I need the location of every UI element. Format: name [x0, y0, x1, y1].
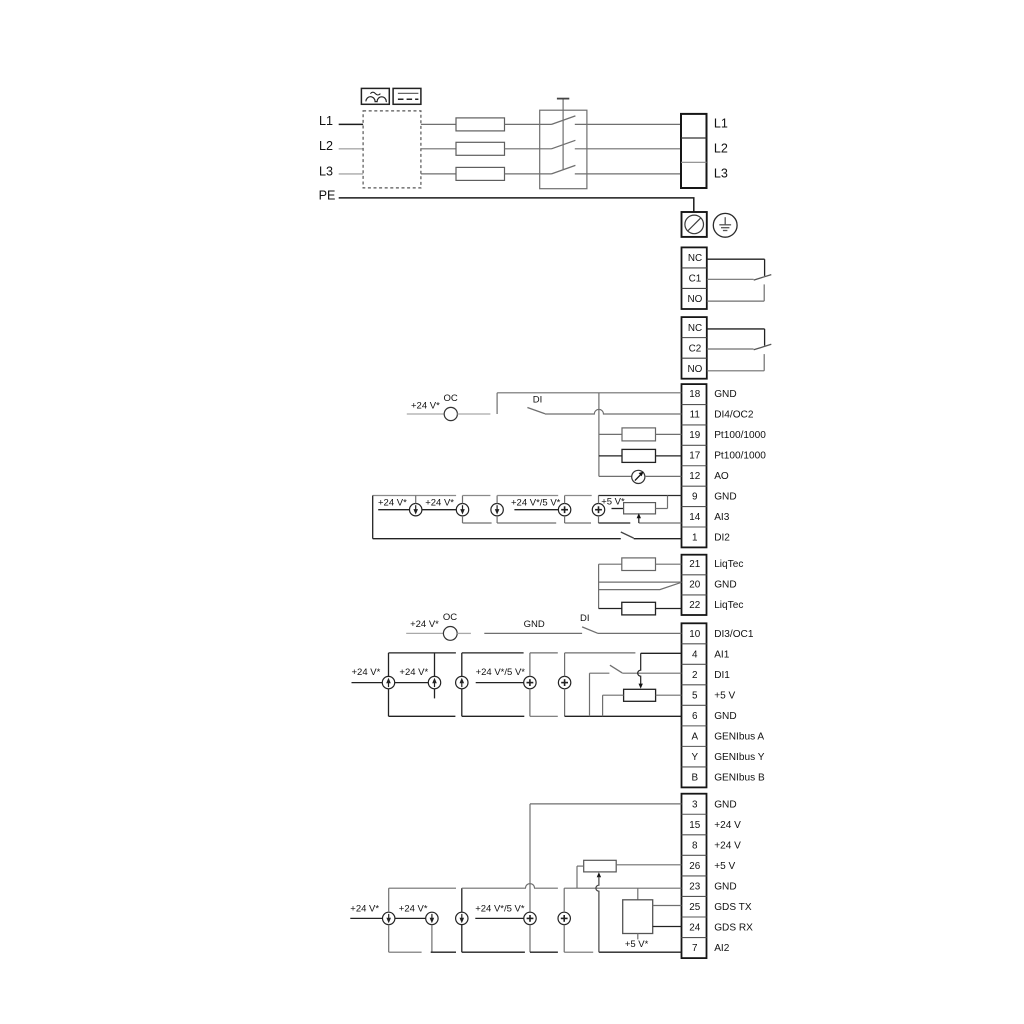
svg-text:AO: AO [714, 471, 729, 482]
svg-text:GND: GND [714, 389, 736, 400]
svg-text:26: 26 [689, 861, 700, 872]
svg-text:20: 20 [689, 580, 700, 591]
svg-text:GND: GND [524, 619, 545, 630]
svg-text:Pt100/1000: Pt100/1000 [714, 430, 766, 441]
svg-text:GND: GND [714, 491, 736, 502]
svg-text:12: 12 [689, 471, 700, 482]
svg-text:10: 10 [689, 629, 700, 640]
svg-text:C1: C1 [689, 274, 702, 285]
svg-text:DI3/OC1: DI3/OC1 [714, 629, 754, 640]
svg-text:L1: L1 [714, 117, 728, 131]
svg-text:NO: NO [688, 364, 703, 375]
svg-text:+24 V*: +24 V* [410, 619, 439, 630]
svg-text:GENIbus Y: GENIbus Y [714, 752, 765, 763]
svg-text:1: 1 [692, 532, 698, 543]
svg-text:L1: L1 [319, 114, 333, 128]
svg-text:PE: PE [319, 189, 336, 203]
svg-text:14: 14 [689, 512, 700, 523]
svg-text:DI: DI [533, 394, 543, 405]
svg-text:GND: GND [714, 711, 736, 722]
svg-text:L2: L2 [319, 139, 333, 153]
svg-text:AI1: AI1 [714, 650, 730, 661]
svg-text:+24 V*: +24 V* [378, 497, 407, 508]
svg-text:2: 2 [692, 670, 698, 681]
svg-text:A: A [692, 732, 699, 743]
svg-text:+5 V*: +5 V* [625, 939, 649, 950]
svg-text:GND: GND [714, 580, 736, 591]
svg-text:+5 V*: +5 V* [601, 497, 625, 508]
svg-text:Pt100/1000: Pt100/1000 [714, 450, 766, 461]
svg-text:+24 V: +24 V [714, 820, 741, 831]
svg-text:9: 9 [692, 491, 698, 502]
svg-text:DI2: DI2 [714, 532, 730, 543]
svg-text:+24 V*: +24 V* [350, 904, 379, 915]
svg-text:5: 5 [692, 691, 698, 702]
svg-text:11: 11 [690, 409, 701, 420]
svg-text:B: B [692, 773, 699, 784]
svg-text:GND: GND [714, 882, 736, 893]
svg-text:18: 18 [689, 389, 700, 400]
svg-text:C2: C2 [689, 343, 702, 354]
svg-text:22: 22 [689, 600, 700, 611]
svg-text:LiqTec: LiqTec [714, 600, 743, 611]
svg-text:NC: NC [688, 253, 702, 264]
svg-text:DI4/OC2: DI4/OC2 [714, 409, 754, 420]
svg-text:AI3: AI3 [714, 512, 730, 523]
svg-text:7: 7 [692, 943, 698, 954]
svg-text:+24 V*/5 V*: +24 V*/5 V* [475, 904, 525, 915]
svg-text:+24 V*/5 V*: +24 V*/5 V* [511, 497, 561, 508]
svg-text:3: 3 [692, 799, 698, 810]
svg-text:15: 15 [689, 820, 700, 831]
svg-text:+24 V*/5 V*: +24 V*/5 V* [476, 667, 526, 678]
svg-text:19: 19 [689, 430, 700, 441]
svg-text:+5 V: +5 V [714, 861, 735, 872]
svg-text:21: 21 [689, 559, 700, 570]
svg-text:+24 V: +24 V [714, 840, 741, 851]
svg-text:+24 V*: +24 V* [399, 904, 428, 915]
svg-text:DI1: DI1 [714, 670, 730, 681]
svg-text:GDS TX: GDS TX [714, 902, 752, 913]
svg-text:+24 V*: +24 V* [411, 400, 440, 411]
svg-text:17: 17 [689, 450, 700, 461]
svg-text:L3: L3 [714, 167, 728, 181]
svg-text:AI2: AI2 [714, 943, 730, 954]
svg-text:OC: OC [443, 393, 457, 404]
svg-text:OC: OC [443, 612, 457, 623]
svg-text:Y: Y [692, 752, 699, 763]
svg-text:+5 V: +5 V [714, 691, 735, 702]
svg-text:L2: L2 [714, 142, 728, 156]
svg-text:8: 8 [692, 840, 698, 851]
svg-text:GENIbus B: GENIbus B [714, 773, 765, 784]
svg-text:25: 25 [689, 902, 700, 913]
svg-text:6: 6 [692, 711, 698, 722]
svg-text:L3: L3 [319, 164, 333, 178]
svg-text:NO: NO [688, 294, 703, 305]
svg-text:LiqTec: LiqTec [714, 559, 743, 570]
svg-text:24: 24 [689, 923, 700, 934]
svg-text:NC: NC [688, 323, 702, 334]
svg-text:DI: DI [580, 613, 590, 624]
svg-text:GDS RX: GDS RX [714, 923, 753, 934]
svg-text:+24 V*: +24 V* [352, 667, 381, 678]
svg-text:+24 V*: +24 V* [399, 667, 428, 678]
svg-text:+24 V*: +24 V* [425, 497, 454, 508]
svg-text:GENIbus A: GENIbus A [714, 732, 764, 743]
svg-text:4: 4 [692, 650, 698, 661]
svg-text:23: 23 [689, 882, 700, 893]
svg-text:GND: GND [714, 799, 736, 810]
